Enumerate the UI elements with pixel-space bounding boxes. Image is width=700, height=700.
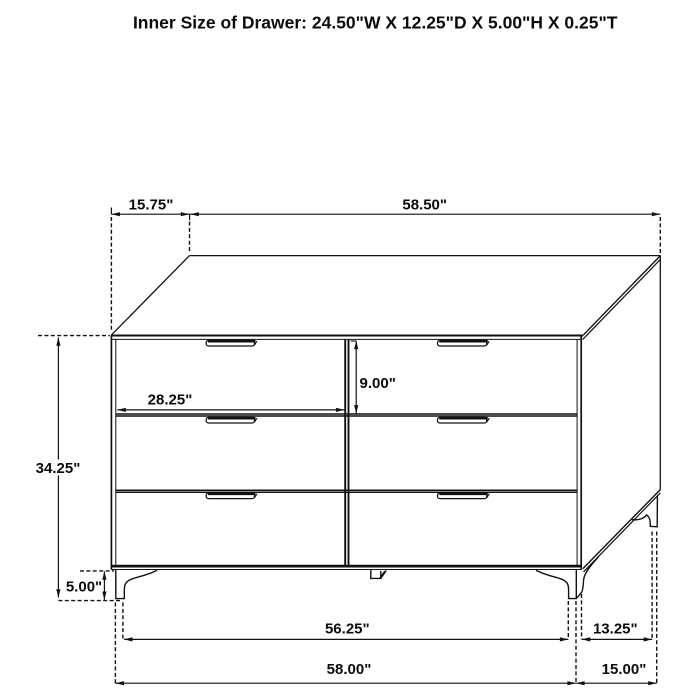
svg-text:13.25": 13.25" bbox=[593, 620, 638, 637]
svg-text:Inner Size of Drawer: 24.50"W: Inner Size of Drawer: 24.50"W X 12.25"D … bbox=[133, 13, 618, 33]
svg-text:58.50": 58.50" bbox=[402, 196, 447, 213]
svg-text:15.00": 15.00" bbox=[602, 661, 647, 678]
svg-text:56.25": 56.25" bbox=[325, 620, 370, 637]
svg-text:58.00": 58.00" bbox=[327, 661, 372, 678]
svg-text:9.00": 9.00" bbox=[360, 375, 396, 392]
svg-text:15.75": 15.75" bbox=[129, 196, 174, 213]
svg-text:28.25": 28.25" bbox=[148, 392, 193, 409]
svg-text:34.25": 34.25" bbox=[36, 460, 81, 477]
svg-text:5.00": 5.00" bbox=[66, 578, 102, 595]
